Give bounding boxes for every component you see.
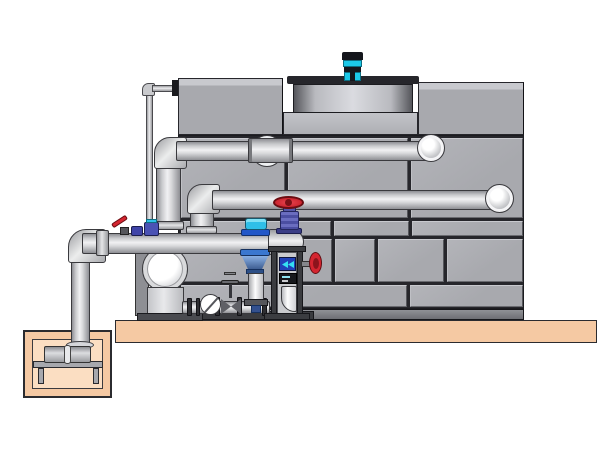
motor-cap xyxy=(342,52,363,60)
illustration-canvas xyxy=(0,0,600,450)
suction-strainer-flange xyxy=(240,249,270,256)
gate-valve-handle xyxy=(221,280,239,284)
frame-post xyxy=(271,249,277,316)
controller-readout xyxy=(282,280,288,282)
dosing-fitting xyxy=(131,226,143,236)
globe-valve-body xyxy=(280,211,299,230)
controller-readout xyxy=(282,276,290,278)
fan-deck xyxy=(283,112,418,135)
globe-valve-hub xyxy=(285,199,292,206)
fan-cowl xyxy=(293,84,413,113)
sight-glass xyxy=(200,294,221,315)
supply-pipe-middle xyxy=(212,190,500,210)
ball-valve-body xyxy=(120,227,129,235)
pipe-flange xyxy=(187,298,192,316)
wall-elbow-ring-upper xyxy=(417,134,445,162)
dosing-fitting-cap xyxy=(146,219,157,223)
coupling-ring xyxy=(64,345,71,364)
motor-center-stripe xyxy=(350,72,355,81)
column-pipe xyxy=(248,273,264,301)
wall-elbow-ring-lower xyxy=(485,184,514,213)
pipe-coupling-sleeve xyxy=(248,138,293,163)
gate-valve-top-tee xyxy=(224,272,236,275)
return-pipe-upper xyxy=(176,141,434,161)
controller-panel xyxy=(279,273,297,284)
wall-panel xyxy=(447,239,523,282)
side-handwheel-hub xyxy=(313,258,319,269)
motor-band-cyan xyxy=(343,60,362,67)
wall-panel xyxy=(335,239,375,282)
dosing-fitting xyxy=(144,222,159,236)
column-foot-fitting xyxy=(251,305,261,313)
wall-panel xyxy=(378,239,444,282)
butterfly-actuator xyxy=(245,218,267,230)
pump-casing xyxy=(147,287,184,315)
actuator-base xyxy=(241,229,270,236)
stand-leg xyxy=(93,368,99,384)
upper-right-casing xyxy=(418,82,524,135)
frame-post xyxy=(297,249,303,316)
makeup-pipe-stub xyxy=(152,85,174,92)
flow-device-arrow xyxy=(282,261,288,268)
wall-panel xyxy=(334,221,409,236)
flow-device xyxy=(279,257,296,271)
frame-bottom-bar xyxy=(264,313,310,320)
wall-panel xyxy=(412,221,523,236)
pipe-collar xyxy=(96,230,109,256)
frame-top-bar xyxy=(268,246,306,252)
fan-motor xyxy=(342,52,363,81)
sump-pump-body xyxy=(68,346,91,363)
concrete-slab xyxy=(115,320,597,343)
sight-glass-needle xyxy=(201,295,221,315)
makeup-pipe-thin xyxy=(146,90,153,224)
gate-valve-stem xyxy=(229,284,232,298)
upper-left-casing xyxy=(178,78,283,135)
makeup-pipe-flange xyxy=(172,80,178,96)
sump-downcomer-pipe xyxy=(71,252,90,344)
wall-panel xyxy=(410,285,523,307)
stand-leg xyxy=(38,368,44,384)
pump-base xyxy=(137,313,203,321)
flow-device-arrow xyxy=(288,261,294,268)
